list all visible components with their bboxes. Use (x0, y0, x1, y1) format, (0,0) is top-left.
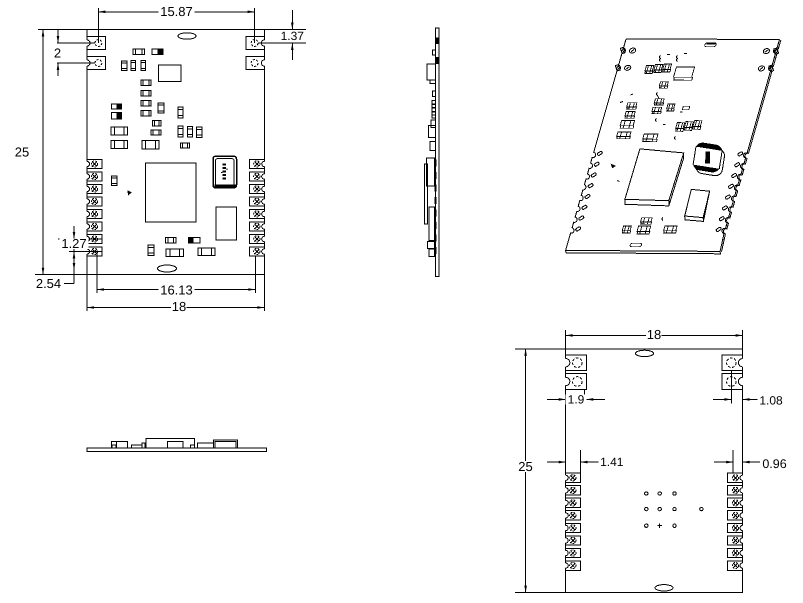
svg-text:25: 25 (15, 144, 29, 159)
svg-text:18: 18 (172, 299, 186, 314)
svg-text:1.27: 1.27 (61, 236, 86, 251)
svg-text:0.96: 0.96 (762, 457, 786, 471)
svg-text:2: 2 (54, 45, 61, 60)
svg-text:1.9: 1.9 (568, 393, 585, 407)
svg-text:1.41: 1.41 (600, 455, 624, 469)
svg-text:25: 25 (518, 459, 532, 474)
svg-text:18: 18 (647, 327, 661, 342)
svg-text:15.87: 15.87 (160, 4, 193, 19)
svg-text:1.08: 1.08 (759, 394, 783, 408)
svg-text:1.37: 1.37 (281, 29, 305, 43)
svg-text:16.13: 16.13 (160, 283, 193, 298)
svg-text:2.54: 2.54 (36, 276, 61, 291)
